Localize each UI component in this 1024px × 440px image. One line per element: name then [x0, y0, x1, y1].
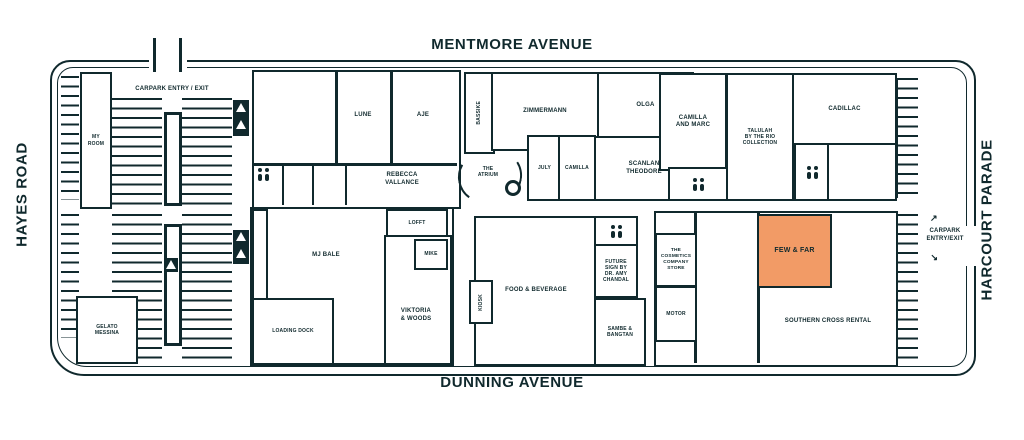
unit-sambe-bangtan[interactable]: SAMBE & BANGTAN: [594, 298, 646, 366]
loading-dock-label: LOADING DOCK: [272, 328, 314, 334]
unit-label: BASSIKE: [476, 101, 482, 125]
loading-dock: LOADING DOCK: [252, 298, 334, 365]
tree-icon: [166, 260, 176, 269]
restroom-top-right: [668, 167, 728, 201]
tree-icon: [236, 103, 246, 112]
unit-mike[interactable]: MIKE: [414, 239, 448, 270]
atrium-label: THE ATRIUM: [470, 166, 506, 179]
parking-rows: [182, 98, 232, 205]
unit-motor[interactable]: MOTOR: [655, 286, 697, 342]
parking-aisle: [164, 112, 182, 206]
unit-camilla-and-marc[interactable]: CAMILLA AND MARC: [659, 73, 727, 171]
unit-label: CAMILLA: [565, 165, 589, 171]
unit-gelato-messina[interactable]: GELATO MESSINA: [76, 296, 138, 364]
street-dunning-avenue: DUNNING AVENUE: [430, 374, 594, 391]
unit-label: MOTOR: [666, 311, 686, 317]
precinct-map: MENTMORE AVENUE DUNNING AVENUE HAYES ROA…: [0, 0, 1024, 440]
carpark-entry-top-label: CARPARK ENTRY / EXIT: [116, 86, 228, 94]
unit-label: CAMILLA AND MARC: [676, 115, 710, 130]
unit-label: KIOSK: [478, 294, 484, 311]
wall: [282, 163, 284, 205]
exit-arrow-icon: ↗: [928, 254, 939, 262]
street-hayes-road: HAYES ROAD: [14, 120, 31, 270]
unit-label: TALULAH BY THE RIO COLLECTION: [743, 128, 778, 147]
unit-label: CADILLAC: [828, 106, 860, 114]
unit-label: MY ROOM: [88, 134, 104, 147]
back-of-house: [827, 143, 897, 201]
unit-aje[interactable]: AJE: [392, 112, 454, 120]
unit-lofft[interactable]: LOFFT: [386, 209, 448, 238]
unit-label: LOFFT: [408, 220, 425, 226]
unit-label: MIKE: [424, 251, 437, 257]
unit-future-sign[interactable]: FUTURE SIGN BY DR. AMY CHANDAL: [594, 244, 638, 298]
unit-rebecca-vallance[interactable]: REBECCA VALLANCE: [350, 172, 454, 187]
driveway-line: [179, 38, 182, 72]
unit-viktoria-woods-label: VIKTORIA & WOODS: [388, 308, 444, 323]
unit-label: FEW & FAR: [774, 247, 814, 256]
unit-mj-bale-label: MJ BALE: [296, 252, 356, 260]
unit-talulah[interactable]: TALULAH BY THE RIO COLLECTION: [726, 73, 794, 201]
parking-rows: [896, 214, 918, 360]
parking-rows: [896, 78, 918, 198]
wall: [312, 163, 314, 205]
restroom-icon: [611, 225, 622, 238]
parking-rows: [112, 98, 162, 205]
unit-lune[interactable]: LUNE: [337, 112, 389, 120]
unit-southern-cross-rental[interactable]: SOUTHERN CROSS RENTAL: [768, 318, 888, 326]
unit-my-room[interactable]: MY ROOM: [80, 72, 112, 209]
unit-label: FOOD & BEVERAGE: [505, 287, 567, 295]
restroom-icon: [258, 168, 269, 181]
landscape-strip: [233, 230, 249, 264]
unit-camilla[interactable]: CAMILLA: [558, 135, 596, 201]
restroom-icon: [693, 178, 704, 191]
tree-icon: [236, 120, 246, 129]
landscape-strip: [233, 100, 249, 136]
street-mentmore-avenue: MENTMORE AVENUE: [430, 36, 594, 53]
unit-label: ZIMMERMANN: [523, 108, 567, 116]
unit-label: GELATO MESSINA: [95, 324, 119, 337]
restroom-cadillac: [794, 143, 831, 201]
unit-label: JULY: [538, 165, 551, 171]
restroom-icon: [807, 166, 818, 179]
driveway-line: [153, 38, 156, 72]
restroom-bottom-center: [594, 216, 638, 246]
unit-label: OLGA: [636, 102, 654, 110]
unit-label: FUTURE SIGN BY DR. AMY CHANDAL: [603, 259, 629, 284]
unit-cosmetics-company-store[interactable]: THE COSMETICS COMPANY STORE: [655, 233, 697, 287]
carpark-entry-right-label: CARPARK ENTRY/EXIT: [918, 228, 972, 243]
parking-aisle: [164, 224, 182, 346]
entry-arrow-icon: ↗: [930, 213, 938, 224]
unit-label: SAMBE & BANGTAN: [607, 326, 633, 339]
landscape-pad: [164, 258, 178, 272]
wall: [345, 163, 347, 205]
street-harcourt-parade: HARCOURT PARADE: [979, 141, 996, 301]
unit-label: THE COSMETICS COMPANY STORE: [661, 248, 691, 272]
unit-few-and-far[interactable]: FEW & FAR: [757, 214, 832, 288]
unit-july[interactable]: JULY: [527, 135, 562, 201]
tree-icon: [236, 249, 246, 258]
parking-rows: [182, 214, 232, 360]
unit-kiosk[interactable]: KIOSK: [469, 280, 493, 324]
parking-rows: [61, 76, 79, 200]
tree-icon: [236, 232, 246, 241]
atrium-ring-icon: [505, 180, 521, 196]
unit-cadillac[interactable]: CADILLAC: [792, 73, 897, 147]
unit-label: SCANLAN THEODORE: [626, 161, 662, 176]
